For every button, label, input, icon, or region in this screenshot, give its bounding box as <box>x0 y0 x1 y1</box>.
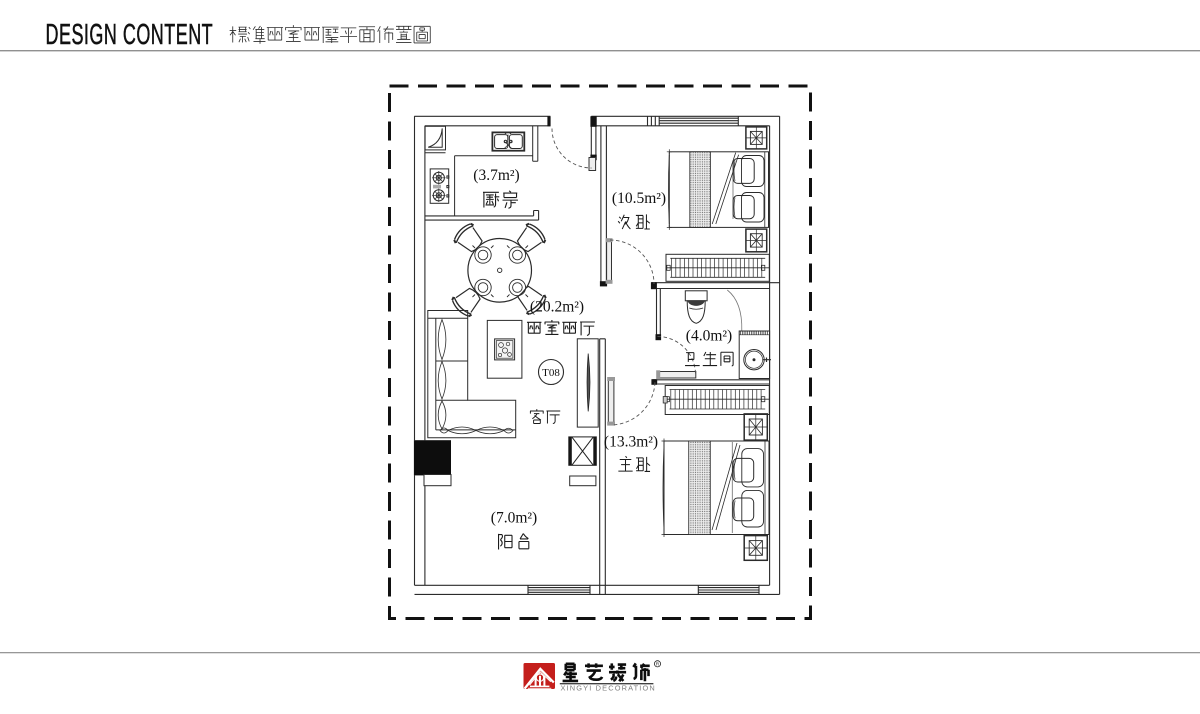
svg-text:(4.0m²): (4.0m²) <box>686 328 732 345</box>
svg-text:XINGYI DECORATION: XINGYI DECORATION <box>561 684 656 693</box>
svg-text:DESIGN CONTENT: DESIGN CONTENT <box>46 19 214 51</box>
svg-text:R: R <box>656 662 660 668</box>
svg-text:T08: T08 <box>542 367 560 379</box>
svg-text:(3.7m²): (3.7m²) <box>473 167 519 184</box>
svg-text:(13.3m²): (13.3m²) <box>604 434 658 451</box>
svg-text:(10.5m²): (10.5m²) <box>612 190 666 207</box>
svg-text:(20.2m²): (20.2m²) <box>530 299 584 316</box>
svg-text:(7.0m²): (7.0m²) <box>491 510 537 527</box>
